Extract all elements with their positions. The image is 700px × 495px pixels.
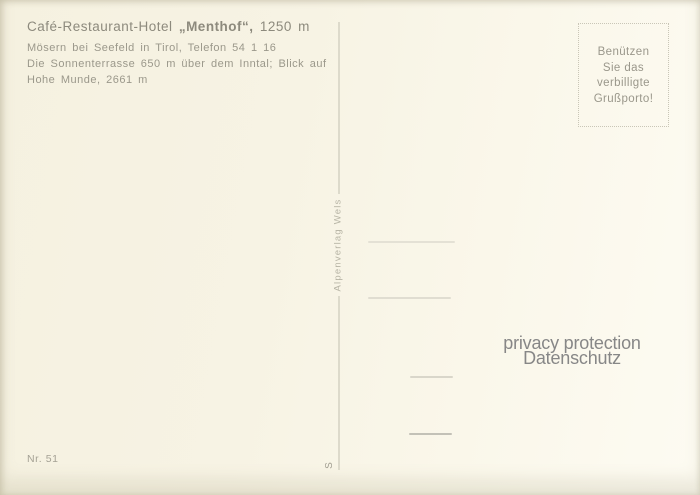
privacy-watermark: privacy protection Datenschutz bbox=[492, 336, 652, 366]
hotel-info-block: Café-Restaurant-Hotel „Menthof“, 1250 m … bbox=[27, 19, 327, 88]
hotel-title: Café-Restaurant-Hotel „Menthof“, 1250 m bbox=[27, 19, 327, 34]
publisher-mark: S bbox=[324, 462, 335, 469]
publisher-imprint: Alpenverlag Wels bbox=[333, 199, 344, 292]
stamp-box-line: Sie das bbox=[579, 61, 668, 77]
hotel-description-2: Hohe Munde, 2661 m bbox=[27, 72, 327, 88]
center-divider-top bbox=[338, 22, 340, 194]
stamp-box-line: Benützen bbox=[579, 45, 668, 61]
privacy-watermark-line2: Datenschutz bbox=[492, 351, 652, 366]
stamp-box: Benützen Sie das verbilligte Grußporto! bbox=[578, 23, 669, 127]
address-ruling-line bbox=[368, 241, 455, 243]
stamp-box-line: verbilligte bbox=[579, 76, 668, 92]
center-divider-bottom bbox=[338, 296, 340, 470]
address-ruling-line bbox=[368, 297, 451, 299]
postcard-back: Café-Restaurant-Hotel „Menthof“, 1250 m … bbox=[0, 0, 700, 495]
address-ruling-line bbox=[409, 433, 452, 435]
hotel-description-1: Die Sonnenterrasse 650 m über dem Inntal… bbox=[27, 56, 327, 72]
stamp-box-line: Grußporto! bbox=[579, 92, 668, 108]
hotel-title-suffix: 1250 m bbox=[254, 19, 310, 34]
address-ruling-line bbox=[410, 376, 453, 378]
hotel-name: „Menthof“, bbox=[179, 19, 254, 34]
card-number: Nr. 51 bbox=[27, 453, 59, 465]
hotel-address-phone: Mösern bei Seefeld in Tirol, Telefon 54 … bbox=[27, 40, 327, 56]
hotel-title-prefix: Café-Restaurant-Hotel bbox=[27, 19, 179, 34]
